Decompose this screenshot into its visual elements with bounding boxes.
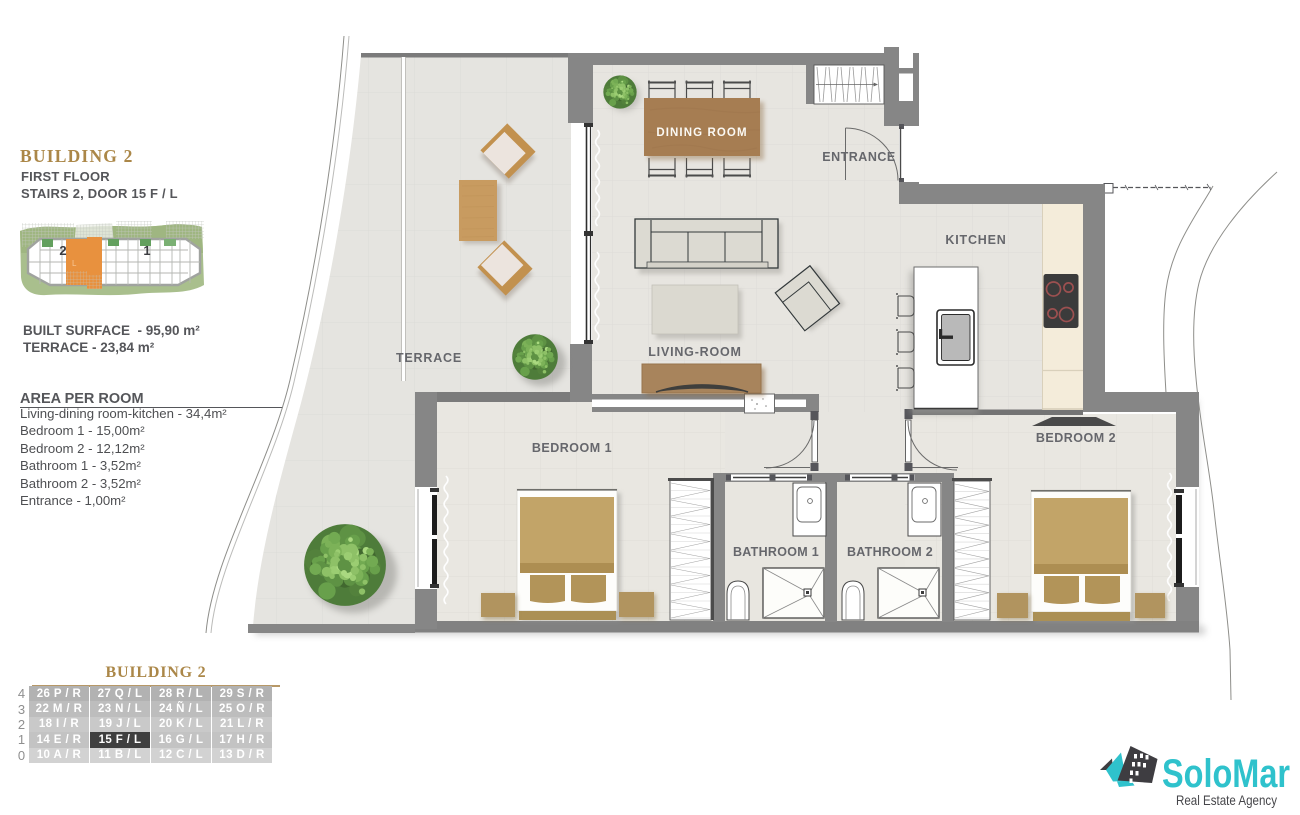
- svg-text:BATHROOM 1: BATHROOM 1: [733, 545, 819, 559]
- svg-text:BEDROOM 1: BEDROOM 1: [532, 441, 612, 455]
- svg-text:BEDROOM 2: BEDROOM 2: [1036, 431, 1116, 445]
- svg-text:KITCHEN: KITCHEN: [945, 233, 1006, 247]
- svg-text:SoloMar: SoloMar: [1162, 752, 1290, 796]
- svg-text:ENTRANCE: ENTRANCE: [822, 150, 895, 164]
- svg-text:Real Estate Agency: Real Estate Agency: [1176, 792, 1277, 808]
- svg-text:LIVING-ROOM: LIVING-ROOM: [648, 345, 742, 359]
- svg-text:DINING ROOM: DINING ROOM: [656, 127, 747, 139]
- svg-text:BATHROOM 2: BATHROOM 2: [847, 545, 933, 559]
- svg-text:TERRACE: TERRACE: [396, 351, 462, 365]
